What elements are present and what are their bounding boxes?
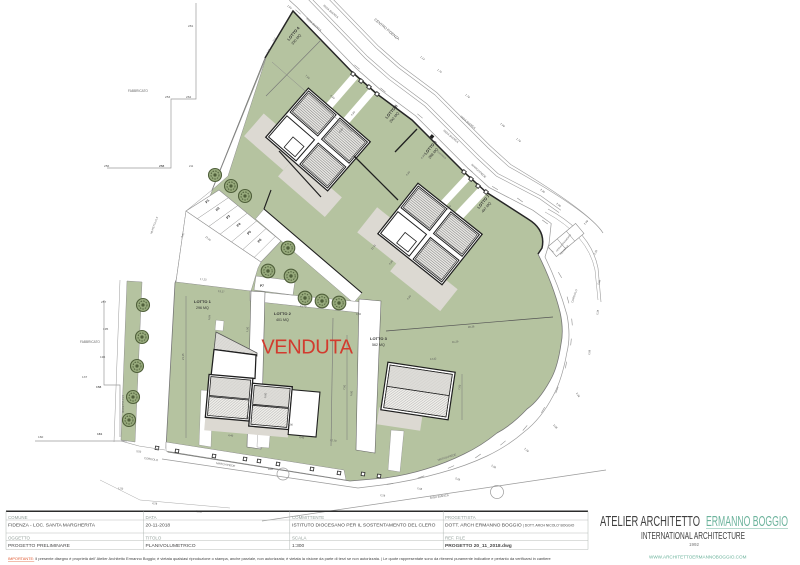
svg-text:20-11-2018: 20-11-2018 — [146, 523, 171, 529]
svg-text:FABBRICATO: FABBRICATO — [80, 340, 100, 344]
svg-text:ATELIER ARCHITETTO: ATELIER ARCHITETTO — [600, 514, 700, 530]
svg-text:28,36: 28,36 — [468, 324, 475, 329]
svg-text:108: 108 — [268, 467, 273, 471]
svg-text:PLANIVOLUMETRICO: PLANIVOLUMETRICO — [146, 543, 196, 549]
svg-text:WWW.ARCHITETTOERMANNOBOGGIO.CO: WWW.ARCHITETTOERMANNOBOGGIO.COM — [649, 555, 747, 560]
svg-text:INTERNATIONAL ARCHITECTURE: INTERNATIONAL ARCHITECTURE — [641, 531, 745, 542]
svg-text:PROGETTISTA: PROGETTISTA — [445, 515, 476, 520]
svg-text:256: 256 — [104, 164, 109, 168]
svg-text:14,32: 14,32 — [430, 357, 437, 361]
svg-text:17,23: 17,23 — [200, 277, 207, 281]
svg-text:281: 281 — [188, 24, 193, 28]
svg-text:401 MQ: 401 MQ — [276, 318, 289, 322]
svg-text:253: 253 — [165, 95, 170, 99]
svg-text:-0,80: -0,80 — [287, 422, 294, 427]
svg-text:ERMANNO BOGGIO: ERMANNO BOGGIO — [706, 514, 788, 530]
svg-text:OGGETTO: OGGETTO — [8, 536, 30, 541]
svg-text:FABBRICATO: FABBRICATO — [128, 89, 148, 93]
svg-text:1:300: 1:300 — [292, 543, 305, 549]
svg-text:296 MQ: 296 MQ — [196, 306, 209, 310]
svg-text:IMPORTANTE: Il presente disegn: IMPORTANTE: Il presente disegno è propri… — [8, 556, 551, 561]
svg-text:LOTTO 3: LOTTO 3 — [370, 336, 388, 341]
svg-text:MURETTA CLS: MURETTA CLS — [121, 395, 125, 413]
svg-text:11,79: 11,79 — [300, 304, 307, 309]
svg-text:0,50: 0,50 — [356, 312, 362, 316]
svg-text:181: 181 — [97, 432, 102, 436]
svg-text:REF. FILE: REF. FILE — [445, 536, 465, 541]
svg-text:5,00: 5,00 — [263, 392, 267, 398]
svg-text:211: 211 — [189, 164, 194, 168]
svg-text:31,29: 31,29 — [452, 339, 459, 344]
svg-text:LOTTO 1: LOTTO 1 — [194, 299, 212, 304]
svg-text:SCALA: SCALA — [292, 536, 306, 541]
svg-text:TITOLO: TITOLO — [146, 536, 162, 541]
svg-text:PROGETTO 20_11_2018.dwg: PROGETTO 20_11_2018.dwg — [445, 543, 512, 549]
svg-text:137: 137 — [82, 375, 87, 379]
svg-text:COMUNE: COMUNE — [8, 515, 28, 520]
svg-text:2,08: 2,08 — [587, 349, 591, 355]
svg-text:FIDENZA - LOC. SANTA MARGHERIT: FIDENZA - LOC. SANTA MARGHERITA — [8, 523, 96, 529]
svg-text:5,00: 5,00 — [349, 390, 353, 396]
svg-text:1992: 1992 — [689, 542, 700, 547]
svg-text:13,17: 13,17 — [218, 289, 225, 294]
svg-text:195: 195 — [103, 327, 108, 331]
svg-text:262: 262 — [186, 95, 191, 99]
svg-text:257: 257 — [101, 300, 106, 304]
svg-text:P7: P7 — [260, 284, 264, 288]
svg-text:196: 196 — [100, 355, 105, 359]
svg-text:562 MQ: 562 MQ — [372, 343, 385, 347]
svg-text:258: 258 — [159, 164, 164, 168]
svg-text:LOTTO 2: LOTTO 2 — [274, 311, 292, 316]
svg-text:1,50: 1,50 — [245, 326, 249, 332]
svg-text:5,04: 5,04 — [207, 314, 211, 320]
svg-text:COMMITTENTE: COMMITTENTE — [292, 515, 324, 520]
svg-text:158: 158 — [96, 385, 101, 389]
svg-text:160: 160 — [38, 435, 43, 439]
svg-text:DATA: DATA — [146, 515, 157, 520]
svg-text:21,15: 21,15 — [181, 353, 185, 360]
svg-text:7,60: 7,60 — [342, 384, 346, 390]
svg-text:VENDUTA: VENDUTA — [261, 337, 353, 359]
svg-text:ISTITUTO DIOCESANO PER IL SOST: ISTITUTO DIOCESANO PER IL SOSTENTAMENTO … — [292, 523, 436, 529]
svg-text:PROGETTO PRELIMINARE: PROGETTO PRELIMINARE — [8, 543, 71, 549]
